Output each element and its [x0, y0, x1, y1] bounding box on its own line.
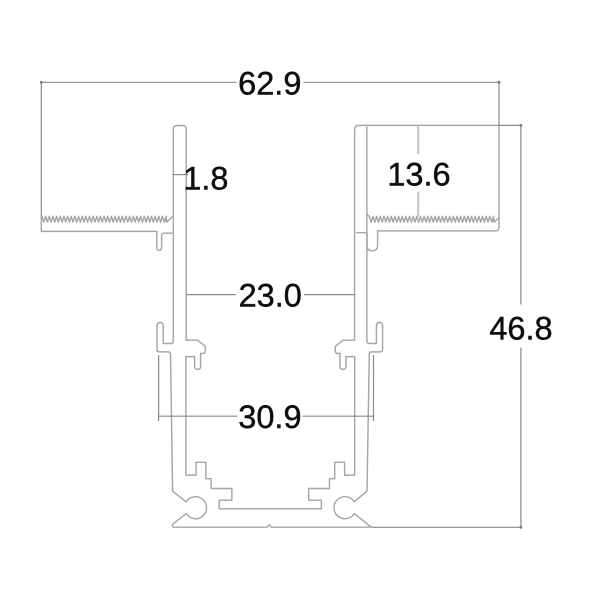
svg-text:46.8: 46.8 [489, 311, 552, 347]
svg-text:30.9: 30.9 [238, 399, 301, 435]
svg-text:13.6: 13.6 [387, 156, 450, 192]
svg-text:62.9: 62.9 [238, 65, 301, 101]
svg-text:23.0: 23.0 [239, 277, 302, 313]
svg-text:1.8: 1.8 [183, 160, 228, 196]
